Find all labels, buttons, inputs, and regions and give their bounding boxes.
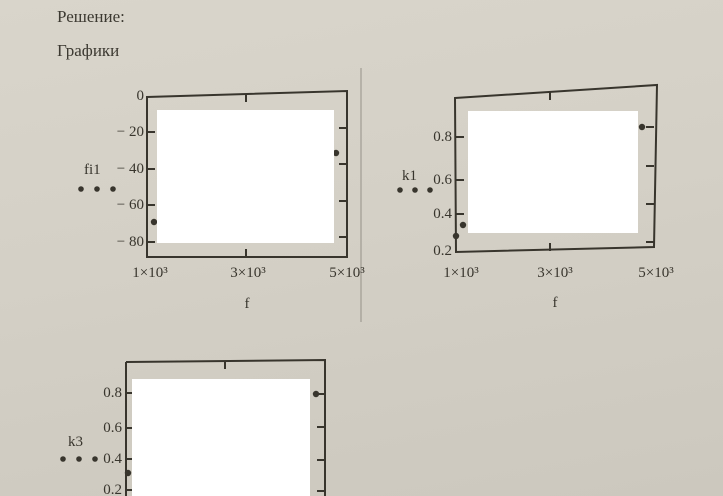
fi1-ytick-label-2: − 40 [96, 160, 144, 178]
fi1-xtick-label-2: 5×10³ [315, 264, 379, 282]
k3-ytick-label-0: 0.8 [74, 384, 122, 402]
k1-xtick-label-1: 3×10³ [523, 264, 587, 282]
fi1-xaxis-label: f [215, 295, 279, 313]
fi1-ytick-label-1: − 20 [96, 123, 144, 141]
k3-redaction-rect [132, 379, 310, 496]
fi1-ytick-label-3: − 60 [96, 196, 144, 214]
fi1-ytick-label-4: − 80 [96, 233, 144, 251]
k1-redaction-rect [468, 111, 638, 233]
solution-heading: Решение: [57, 7, 125, 27]
k1-xtick-label-2: 5×10³ [624, 264, 688, 282]
graphs-heading: Графики [57, 41, 119, 61]
fi1-xtick-label-0: 1×10³ [118, 264, 182, 282]
k1-ytick-label-0: 0.8 [404, 128, 452, 146]
k1-xtick-label-0: 1×10³ [429, 264, 493, 282]
fi1-ytick-label-0: 0 [96, 87, 144, 105]
fi1-redaction-rect [157, 110, 334, 243]
k1-ytick-label-1: 0.6 [404, 171, 452, 189]
fi1-legend-marker-dots [78, 186, 116, 192]
k1-xaxis-label: f [523, 294, 587, 312]
k3-ytick-label-3: 0.2 [74, 481, 122, 496]
k3-ytick-label-2: 0.4 [74, 450, 122, 468]
k1-ytick-label-3: 0.2 [404, 242, 452, 260]
k1-ytick-label-2: 0.4 [404, 205, 452, 223]
scanned-solution-page: Решение: Графики [0, 0, 723, 496]
fi1-xtick-label-1: 3×10³ [216, 264, 280, 282]
k3-ytick-label-1: 0.6 [74, 419, 122, 437]
